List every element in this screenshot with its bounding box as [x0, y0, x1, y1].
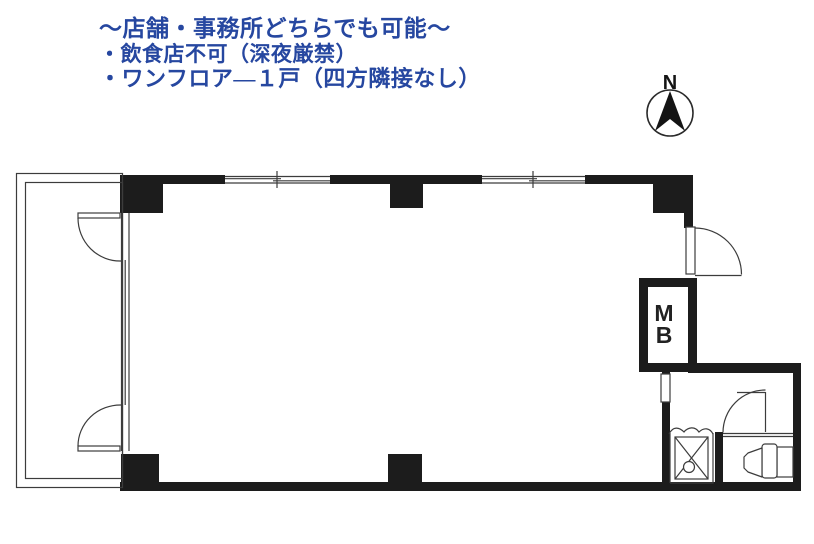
wall-segment [793, 363, 801, 491]
door-panel [78, 446, 120, 451]
balcony-door-lower [78, 405, 121, 451]
wall-segment [684, 175, 693, 228]
column [390, 175, 423, 208]
meter-box-label-b: B [656, 322, 673, 348]
north-compass: N [647, 72, 693, 136]
toilet-door [723, 390, 793, 437]
balcony-door-upper [78, 213, 121, 261]
column [388, 454, 422, 482]
toilet-bowl [744, 448, 762, 477]
shower-unit [669, 428, 713, 483]
toilet-tank [762, 444, 777, 478]
meter-box: M B [648, 287, 688, 363]
door-swing-arc [723, 390, 766, 433]
column [120, 175, 163, 213]
door-panel [686, 227, 695, 274]
window-1 [225, 171, 330, 188]
compass-needle-icon [655, 91, 685, 131]
toilet-shelf [777, 447, 793, 477]
wall-segment [688, 363, 801, 373]
floor-plan: N M B [0, 0, 814, 544]
drain-icon [684, 462, 695, 473]
window-2 [482, 171, 585, 188]
entrance-door [686, 227, 742, 276]
door-panel [78, 213, 120, 218]
door-swing-arc [78, 405, 121, 446]
wall-segment [715, 432, 723, 483]
door-swing-arc [695, 228, 742, 275]
washroom-entry-door [661, 374, 670, 402]
balcony [17, 174, 123, 488]
door-swing-arc [78, 218, 121, 261]
balcony-inner-line [26, 183, 123, 479]
shower-pan-wavy-edge [669, 428, 713, 434]
toilet [744, 444, 793, 478]
balcony-outer-line [17, 174, 123, 488]
walls [120, 175, 801, 491]
